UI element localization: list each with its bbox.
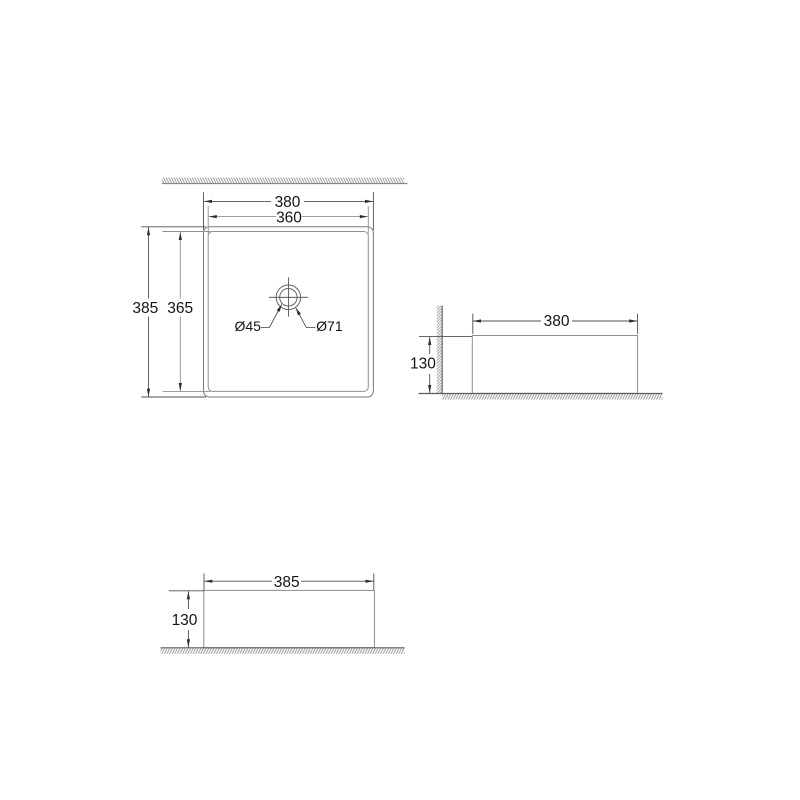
svg-text:385: 385 [132,300,158,317]
svg-text:130: 130 [172,612,198,629]
svg-text:365: 365 [167,300,193,317]
svg-text:130: 130 [410,355,436,372]
svg-text:380: 380 [544,313,570,330]
svg-text:360: 360 [276,209,302,226]
svg-text:385: 385 [274,574,300,591]
svg-text:Ø71: Ø71 [316,318,343,334]
svg-text:Ø45: Ø45 [234,318,261,334]
